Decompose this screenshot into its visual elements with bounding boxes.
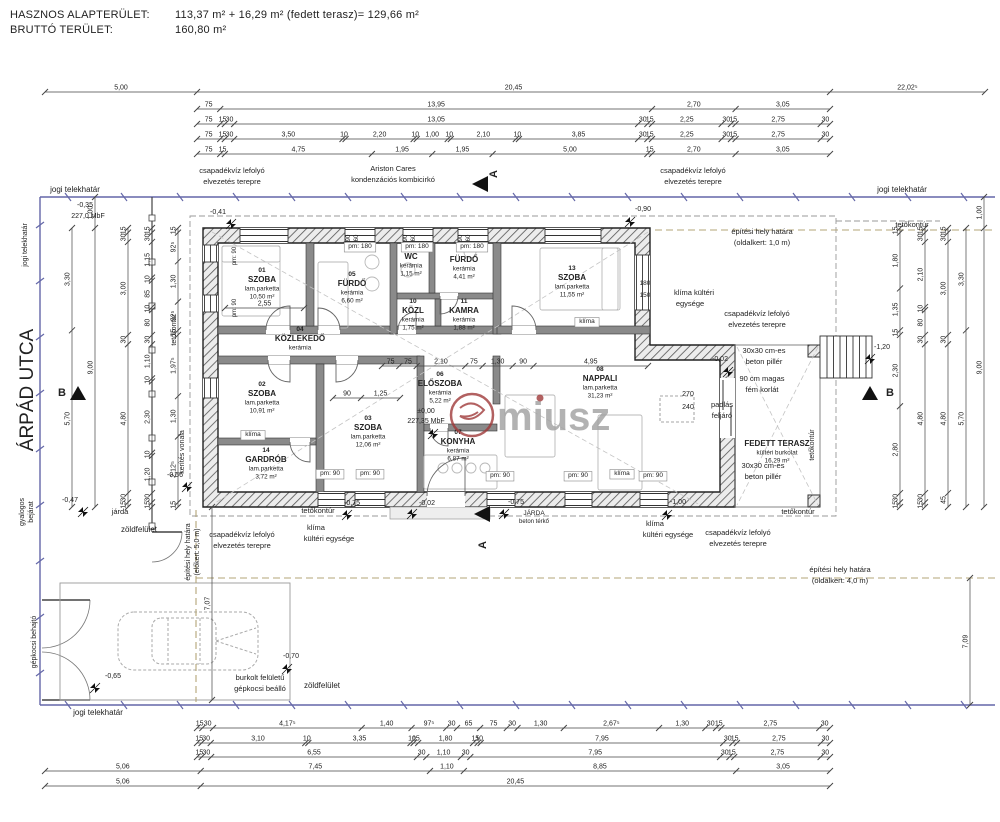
annotation: csapadékvíz lefolyó — [660, 166, 725, 175]
room-label: 01SZOBAlam.parketta10,50 m² — [245, 267, 280, 301]
dim-label: 1,80 — [439, 736, 453, 743]
watermark-logo-swirl-icon — [460, 403, 484, 418]
dim-chain: 15301,1510851080301,10102,30101,203015 — [145, 225, 156, 510]
room-area: 6,60 m² — [341, 298, 362, 305]
section-marker: B — [862, 386, 894, 400]
room-material: kerámia — [341, 290, 364, 297]
annotation-text: ÁRPÁD UTCA — [17, 328, 38, 451]
dim-label: 15 — [729, 117, 737, 124]
furniture-item — [365, 255, 379, 269]
dim-label: 2,75 — [764, 721, 778, 728]
dim-label: 4,95 — [584, 359, 598, 366]
dim-label: 2,25 — [680, 117, 694, 124]
annotation: 227,0 MbF — [71, 213, 104, 220]
dim-label: 1,30 — [491, 359, 505, 366]
dim-chain: 3,305,70 — [65, 225, 76, 510]
dim-label: 7,07 — [205, 597, 212, 611]
annotation-text: 227,0 MbF — [71, 213, 104, 220]
room-area: 1,75 m² — [402, 325, 423, 332]
dim-label: 15 — [731, 736, 739, 743]
room-label: 06ELŐSZOBAkerámia5,22 m² — [418, 371, 463, 405]
annotation: JÁRDA — [523, 508, 545, 517]
annotation-text: tetőkontúr — [301, 506, 335, 515]
level-marker: -0,70 — [282, 653, 299, 674]
annotation-text: elvezetés terepre — [203, 177, 261, 186]
dim-label: 22,02⁵ — [897, 85, 918, 92]
annotation-text: pm: 90 — [568, 472, 588, 479]
annotation-text: elvezetés terepre — [213, 541, 271, 550]
dim-label: 4,80 — [121, 412, 128, 426]
level-value: -0,41 — [210, 209, 226, 216]
dim-chain: 75154,751,951,955,00152,703,05 — [194, 147, 833, 158]
dim-label: 75 — [404, 359, 412, 366]
level-marker: -0,90 — [625, 206, 651, 227]
annotation: jogi telekhatár — [22, 223, 29, 268]
room-number: 08 — [596, 366, 604, 373]
room-material: kerámia — [453, 266, 476, 273]
dim-label: 30 — [941, 233, 948, 241]
annotation-text: egysége — [676, 299, 704, 308]
dim-label: 15 — [171, 501, 178, 509]
dim-label: 3,30 — [959, 272, 966, 286]
annotation: pm: 90 — [232, 246, 238, 265]
dim-chain: 7515303,50102,20101,00102,10103,8530152,… — [194, 132, 833, 143]
dim-label: 2,70 — [687, 102, 701, 109]
furniture-item — [466, 463, 476, 473]
annotation: pm: 90 — [232, 298, 238, 317]
annotation-text: JÁRDA — [523, 508, 545, 517]
dim-label: 1,25 — [374, 391, 388, 398]
level-value: -0,02 — [712, 356, 728, 363]
annotation-text: jogi telekhatár — [49, 185, 100, 194]
room-number: 13 — [568, 265, 576, 272]
annotation: fém korlát — [746, 385, 780, 394]
dim-label: 3,05 — [776, 102, 790, 109]
level-flag-icon — [347, 515, 352, 520]
dim-label: 2,25 — [680, 132, 694, 139]
dim-label: 1,95 — [395, 147, 409, 154]
dim-label: 15 — [145, 226, 152, 234]
dim-label: 75 — [387, 359, 395, 366]
dim-chain: 1,009,00 — [88, 194, 99, 510]
dim-label: 65 — [465, 721, 473, 728]
dim-chain: 5,0020,4522,02⁵ — [42, 85, 988, 96]
annotation-text: 90 — [458, 234, 464, 241]
level-value: -0,90 — [635, 206, 651, 213]
dim-chain: 5,0620,45 — [42, 779, 833, 790]
annotation-text: (oldalkert: 4,0 m) — [812, 576, 869, 585]
annotation: klíma — [307, 523, 326, 532]
annotation: Ariston Cares — [370, 164, 416, 173]
annotation-text: klíma — [307, 523, 326, 532]
annotation: elvezetés terepre — [709, 539, 767, 548]
annotation: zöldfelület — [121, 525, 158, 534]
dim-label: 85 — [145, 290, 152, 298]
annotation-text: klíma kültéri — [674, 288, 714, 297]
annotation-text: elvezetés terepre — [664, 177, 722, 186]
dim-label: 7,45 — [309, 764, 323, 771]
level-marker: -0,56 — [167, 472, 192, 492]
dim-label: 90 — [519, 359, 527, 366]
floor-plan-sheet: HASZNOS ALAPTERÜLET:113,37 m² + 16,29 m²… — [0, 0, 1000, 822]
annotation-text: 150 — [640, 292, 651, 299]
annotation: bejárat — [28, 501, 35, 522]
annotation: klíma — [575, 318, 599, 328]
room-name: SZOBA — [248, 389, 276, 398]
annotation: beton pillér — [746, 357, 783, 366]
dim-label: 15 — [145, 501, 152, 509]
level-value: -1,20 — [874, 344, 890, 351]
room-material: kerámia — [429, 390, 452, 397]
dim-label: 1,35 — [893, 302, 900, 316]
annotation-text: Ariston Cares — [370, 164, 416, 173]
room-material: kerámia — [447, 448, 470, 455]
annotation-text: padlás — [711, 400, 733, 409]
dim-label: 15 — [893, 501, 900, 509]
annotation: 180 — [640, 280, 651, 287]
annotation-text: kondenzációs kombicirkó — [351, 175, 435, 184]
header-label-hasznos: HASZNOS ALAPTERÜLET: — [10, 8, 175, 23]
dim-chain: 7513,952,703,05 — [194, 102, 833, 113]
annotation-text: ±0,00 — [417, 408, 435, 415]
annotation: zöldfelület — [304, 681, 341, 690]
room-number: 06 — [436, 371, 444, 378]
room-name: ELŐSZOBA — [418, 379, 463, 388]
room-name: SZOBA — [248, 275, 276, 284]
vehicle-gate — [42, 600, 90, 700]
dim-label: 4,80 — [941, 412, 948, 426]
dim-label: 30 — [918, 494, 925, 502]
annotation-text: bejárat — [28, 501, 35, 522]
annotation-text: építési hely határa — [809, 565, 871, 574]
door-gap — [266, 326, 290, 334]
room-material: kerámia — [400, 263, 423, 270]
dim-label: 92⁵ — [171, 242, 178, 253]
level-flag-icon — [282, 664, 287, 669]
annotation: ÁRPÁD UTCA — [17, 328, 38, 451]
room-material: kültéri burkolat — [757, 450, 798, 457]
room-label: 11KAMRAkerámia1,88 m² — [449, 298, 479, 332]
dim-label: 1,80 — [893, 254, 900, 268]
annotation: gépkocsi behajtó — [31, 616, 38, 669]
annotation: pm: 90 — [564, 472, 592, 482]
annotation: klíma — [241, 431, 265, 441]
annotation-text: gépkocsi behajtó — [31, 616, 38, 669]
dim-label: 97⁵ — [424, 721, 435, 728]
annotation-text: csapadékvíz lefolyó — [724, 309, 789, 318]
annotation-text: (oldalkert: 1,0 m) — [734, 238, 791, 247]
room-name: NAPPALI — [583, 374, 618, 383]
annotation-text: járda — [111, 507, 130, 516]
level-flag-icon — [83, 512, 88, 517]
dim-label: 9,00 — [88, 361, 95, 375]
dim-label: 15 — [715, 721, 723, 728]
dim-label: 2,67⁵ — [603, 721, 620, 728]
room-number: 01 — [258, 267, 266, 274]
dim-label: 1,00 — [977, 206, 984, 220]
level-flag-icon — [433, 434, 438, 439]
room-area: 6,87 m² — [447, 456, 468, 463]
dim-label: 15 — [941, 226, 948, 234]
annotation: elvezetés terepre — [728, 320, 786, 329]
header-line-1: HASZNOS ALAPTERÜLET:113,37 m² + 16,29 m²… — [10, 8, 419, 23]
annotation: kültéri egysége — [643, 530, 693, 539]
dim-label: 30 — [226, 117, 234, 124]
annotation-text: 60 — [411, 234, 417, 241]
annotation: építési hely határa — [185, 523, 192, 580]
annotation-text: tetőkontúr — [781, 507, 815, 516]
room-material: kerámia — [453, 317, 476, 324]
level-value: -0,47 — [62, 497, 78, 504]
dim-label: 4,80 — [918, 412, 925, 426]
dim-chain: 15306,55301,10307,9530152,7530 — [194, 750, 833, 761]
dim-label: 7,95 — [595, 736, 609, 743]
annotation-text: feljáró — [712, 411, 732, 420]
level-value: -0,75 — [344, 500, 360, 507]
dim-label: 1,10 — [145, 354, 152, 368]
annotation-text: jogi telekhatár — [22, 223, 29, 268]
annotation-text: pm: 90 — [232, 298, 238, 317]
room-name: SZOBA — [558, 273, 586, 282]
level-marker: -0,41 — [210, 209, 236, 229]
annotation-text: gyalogos — [19, 497, 26, 526]
annotation-text: csapadékvíz lefolyó — [209, 530, 274, 539]
room-number: 02 — [258, 381, 266, 388]
annotation-text: elvezetés terepre — [709, 539, 767, 548]
annotation: (oldalkert: 1,0 m) — [734, 238, 791, 247]
dim-label: 2,30 — [893, 364, 900, 378]
level-value: -0,70 — [283, 653, 299, 660]
parking-area — [60, 583, 290, 700]
annotation-text: zöldfelület — [304, 681, 341, 690]
dim-label: 30 — [941, 336, 948, 344]
level-value: -1,00 — [670, 499, 686, 506]
boundary-ticks — [36, 193, 967, 709]
dim-label: 2,10 — [477, 132, 491, 139]
annotation: ±0,00 — [417, 408, 435, 415]
dim-label: 30 — [508, 721, 516, 728]
door — [266, 306, 290, 334]
dim-label: 7,09 — [963, 635, 970, 649]
dim-label: 3,50 — [282, 132, 296, 139]
dim-label: 2,20 — [373, 132, 387, 139]
annotation: 90 — [346, 234, 352, 241]
annotation: beton pillér — [745, 472, 782, 481]
level-flag-icon — [870, 359, 875, 364]
dim-label: 75 — [205, 117, 213, 124]
room-number: 04 — [296, 326, 304, 333]
room-area: 3,72 m² — [255, 474, 276, 481]
annotation-text: beton pillér — [745, 472, 782, 481]
annotation: járda — [111, 507, 130, 516]
header-value-hasznos: 113,37 m² + 16,29 m² (fedett terasz)= 12… — [175, 9, 419, 21]
dim-label: 30 — [145, 233, 152, 241]
level-flag-icon — [630, 222, 635, 227]
dim-chain: 1,009,00 — [977, 194, 988, 510]
dim-label: 2,70 — [687, 147, 701, 154]
annotation: 227,35 MbF — [407, 418, 444, 425]
watermark-dot-icon — [537, 395, 544, 402]
watermark-text: miusz — [497, 395, 610, 439]
window — [203, 245, 218, 262]
level-marker: -0,65 — [90, 673, 121, 693]
annotation: pm: 90 — [316, 470, 344, 480]
dim-label: 15 — [893, 329, 900, 337]
room-name: WC — [404, 252, 418, 261]
dim-label: 2,80 — [893, 443, 900, 457]
dim-chain: 7,09 — [963, 575, 974, 708]
dim-label: 1,15 — [145, 253, 152, 267]
room-area: 5,22 m² — [429, 398, 450, 405]
dim-label: 5,06 — [116, 779, 130, 786]
dim-label: 2,75 — [772, 736, 786, 743]
annotation: 240 — [682, 404, 694, 411]
annotation-text: csapadékvíz lefolyó — [660, 166, 725, 175]
annotation: építési hely határa — [731, 227, 793, 236]
annotation-text: pm: 180 — [348, 243, 372, 250]
dim-label: 15 — [918, 501, 925, 509]
annotation-text: csapadékvíz lefolyó — [199, 166, 264, 175]
dim-label: 1,30 — [171, 275, 178, 289]
dim-label: 3,10 — [251, 736, 265, 743]
annotation-text: építési hely határa — [185, 523, 192, 580]
dim-label: 2,10 — [918, 268, 925, 282]
dim-label: 15 — [219, 147, 227, 154]
annotation: kondenzációs kombicirkó — [351, 175, 435, 184]
annotation-text: klíma — [245, 431, 261, 438]
annotation-text: jogi telekhatár — [876, 185, 927, 194]
annotation-text: beton pillér — [746, 357, 783, 366]
room-area: 4,41 m² — [453, 274, 474, 281]
annotation-text: tetőkontúr — [809, 429, 816, 461]
annotation-text: pm: 90 — [232, 246, 238, 265]
dim-chain: 15303,00304,803015 — [121, 225, 132, 510]
annotation: burkolt felületű — [236, 673, 285, 682]
annotation: csapadékvíz lefolyó — [705, 528, 770, 537]
level-marker: -0,47 — [62, 497, 88, 517]
annotation: 60 — [466, 234, 472, 241]
room-material: kerámia — [289, 345, 312, 352]
dim-chain: 15303,00304,8045 — [941, 225, 952, 510]
annotation-text: fém korlát — [746, 385, 780, 394]
annotation: elvezetés terepre — [213, 541, 271, 550]
dim-chain: 75153013,0530152,2530152,7530 — [194, 117, 833, 128]
level-flag-icon — [504, 514, 509, 519]
dim-chain: 15302,101080304,803015 — [918, 225, 929, 510]
room-area: 1,88 m² — [453, 325, 474, 332]
annotation: kültéri egysége — [304, 534, 354, 543]
dim-label: 13,95 — [427, 102, 445, 109]
section-letter: B — [58, 387, 66, 399]
room-name: FÜRDŐ — [450, 255, 478, 264]
annotation-text: kültéri egysége — [643, 530, 693, 539]
dim-label: 15 — [171, 226, 178, 234]
dim-label: 30 — [822, 736, 830, 743]
interior-wall — [306, 243, 314, 326]
dim-label: 75 — [205, 102, 213, 109]
dim-label: 1,30 — [534, 721, 548, 728]
section-arrow-icon — [862, 386, 878, 400]
annotation: feljáró — [712, 411, 732, 420]
header-line-2: BRUTTÓ TERÜLET:160,80 m² — [10, 23, 419, 38]
annotation-text: klíma — [579, 318, 595, 325]
header-value-brutto: 160,80 m² — [175, 24, 226, 36]
room-area: 10,91 m² — [250, 408, 275, 415]
room-name: SZOBA — [354, 423, 382, 432]
annotation: 90 — [458, 234, 464, 241]
dim-label: 30 — [821, 750, 829, 757]
section-letter: A — [488, 170, 500, 178]
annotation: csapadékvíz lefolyó — [199, 166, 264, 175]
level-marker: -0,75 — [342, 500, 360, 520]
annotation-text: jogi telekhatár — [72, 708, 123, 717]
dim-label: 30 — [121, 336, 128, 344]
annotation-text: 90 — [346, 234, 352, 241]
room-area: 1,15 m² — [400, 271, 421, 278]
annotation: klíma — [610, 470, 634, 480]
annotation: -0,35 — [77, 202, 93, 209]
level-flag-icon — [187, 487, 192, 492]
annotation: 30x30 cm-es — [743, 346, 786, 355]
annotation-text: 60 — [466, 234, 472, 241]
dim-chain: 15303,10103,3510151,8015107,9530152,7530 — [194, 736, 833, 747]
header-label-brutto: BRUTTÓ TERÜLET: — [10, 23, 175, 38]
dim-label: 1,97⁵ — [171, 357, 178, 374]
annotation-text: gépkocsi beálló — [234, 684, 286, 693]
door-gap — [336, 356, 358, 364]
section-marker: A — [472, 170, 500, 192]
dim-label: 80 — [145, 319, 152, 327]
dim-label: 1,20 — [145, 468, 152, 482]
annotation: tetőkontúr — [301, 506, 335, 515]
annotation: 270 — [682, 391, 694, 398]
room-label: 13SZOBAlam.parketta11,55 m² — [555, 265, 590, 299]
dim-label: 15 — [646, 117, 654, 124]
dim-label: 4,75 — [292, 147, 306, 154]
annotation-text: építési hely határa — [731, 227, 793, 236]
annotation-text: klíma — [646, 519, 665, 528]
annotation-text: (előkert: 5,0 m) — [194, 528, 201, 575]
window — [240, 228, 288, 243]
annotation-text: pm: 180 — [460, 243, 484, 250]
room-name: KÖZL — [402, 306, 424, 315]
dim-label: 30 — [121, 494, 128, 502]
annotation: elvezetés terepre — [664, 177, 722, 186]
dim-label: 5,00 — [114, 85, 128, 92]
room-label: 05FÜRDŐkerámia6,60 m² — [338, 271, 366, 305]
room-number: 11 — [461, 298, 468, 305]
annotation-text: 270 — [682, 391, 694, 398]
room-label: 14GARDRÓBlam.parketta3,72 m² — [245, 447, 287, 481]
room-material: lam.parketta — [583, 385, 618, 392]
dim-label: 2,75 — [771, 750, 785, 757]
dim-label: 1,00 — [425, 132, 439, 139]
annotation: elvezetés terepre — [203, 177, 261, 186]
annotation: beton térkő — [519, 519, 550, 525]
dim-label: 1,30 — [171, 409, 178, 423]
dim-label: 2,55 — [258, 301, 272, 308]
level-flag-icon — [625, 217, 630, 222]
interior-wall — [493, 243, 501, 334]
dim-label: 1,40 — [380, 721, 394, 728]
dim-label: 30 — [145, 336, 152, 344]
dim-label: 3,85 — [572, 132, 586, 139]
section-letter: B — [886, 387, 894, 399]
level-value: -0,75 — [508, 499, 524, 506]
annotation: pm: 90 — [486, 472, 514, 482]
annotation-text: 240 — [682, 404, 694, 411]
annotation: jogi telekhatár — [876, 185, 927, 194]
